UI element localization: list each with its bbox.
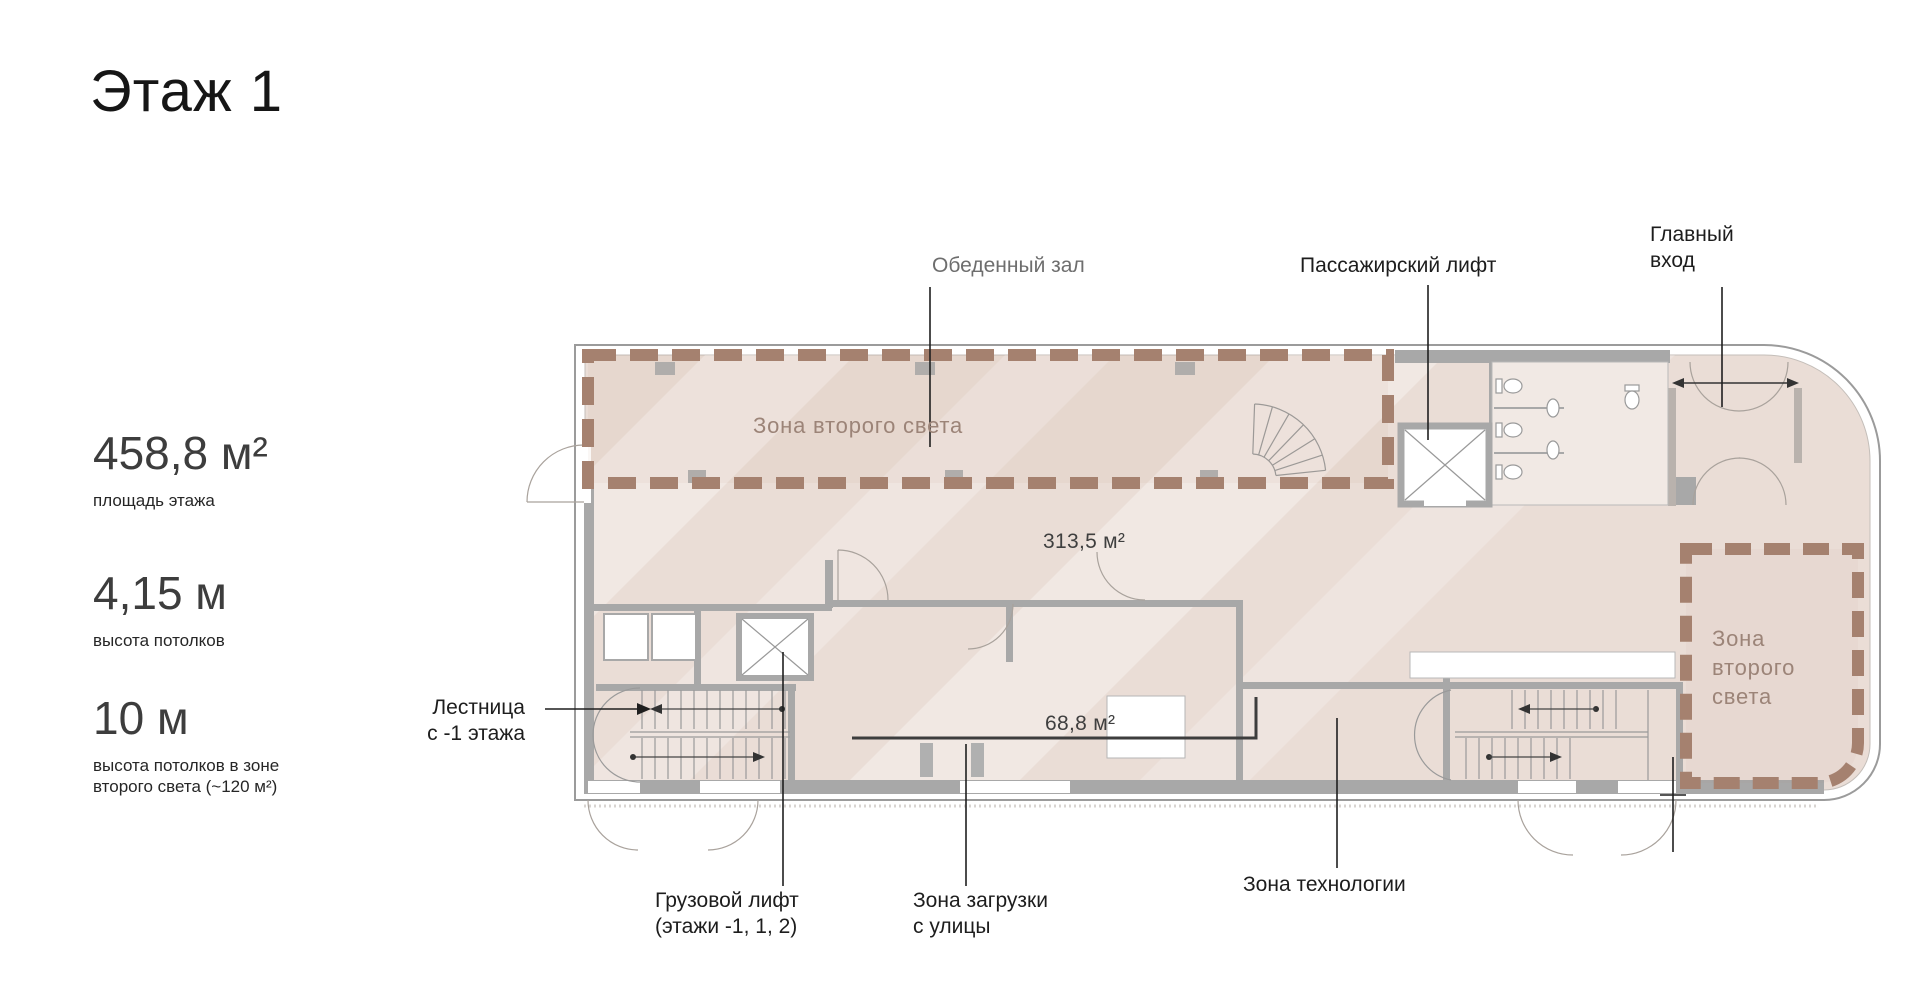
stat-ceiling-height: 4,15 м высота потолков bbox=[93, 570, 227, 651]
stat-ceiling-height-caption: высота потолков bbox=[93, 630, 227, 651]
label-second-light-zone-left: Зона второго света bbox=[753, 411, 963, 440]
passenger-lift-shaft bbox=[1401, 426, 1489, 506]
label-technology-zone: Зона технологии bbox=[1243, 872, 1406, 898]
label-passenger-lift: Пассажирский лифт bbox=[1300, 253, 1496, 279]
freight-lift-shaft bbox=[739, 616, 811, 678]
label-freight-lift: Грузовой лифт (этажи -1, 1, 2) bbox=[655, 888, 799, 940]
label-loading-zone: Зона загрузки с улицы bbox=[913, 888, 1048, 940]
stat-floor-area: 458,8 м² площадь этажа bbox=[93, 430, 268, 511]
second-light-zone-left-border bbox=[588, 355, 1388, 483]
label-second-light-zone-right: Зона второго света bbox=[1712, 624, 1795, 711]
stat-second-light-height-value: 10 м bbox=[93, 695, 279, 741]
label-main-entrance: Главный вход bbox=[1650, 222, 1734, 274]
stat-ceiling-height-value: 4,15 м bbox=[93, 570, 227, 616]
floor-plan-page: Этаж 1 458,8 м² площадь этажа 4,15 м выс… bbox=[0, 0, 1920, 996]
stat-floor-area-caption: площадь этажа bbox=[93, 490, 268, 511]
stat-floor-area-value: 458,8 м² bbox=[93, 430, 268, 476]
stat-second-light-height: 10 м высота потолков в зоне второго свет… bbox=[93, 695, 279, 798]
area-service: 68,8 м² bbox=[1045, 712, 1115, 736]
page-title: Этаж 1 bbox=[90, 58, 283, 125]
floor-plan-drawing bbox=[0, 0, 1920, 996]
stat-second-light-height-caption: высота потолков в зоне второго света (~1… bbox=[93, 755, 279, 798]
label-stairs-from-minus1: Лестница с -1 этажа bbox=[375, 695, 525, 747]
area-main-hall: 313,5 м² bbox=[1043, 530, 1125, 554]
label-dining-hall: Обеденный зал bbox=[932, 253, 1085, 279]
